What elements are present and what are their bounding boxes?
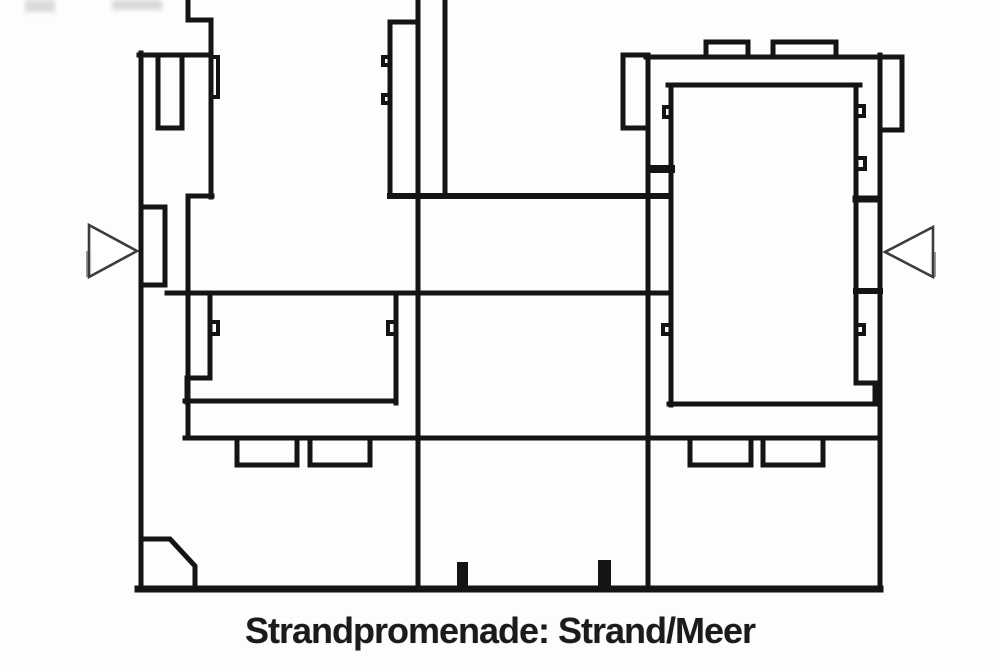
scan-artifact-1 [25,0,55,12]
entrance-arrow-left [89,225,137,277]
chamfer-corner [145,539,195,588]
door-marks-group [457,560,611,588]
door-tick-1 [457,562,468,588]
floor-plan-drawing [0,0,1000,666]
pilaster-right [880,57,902,130]
floor-plan-page: Strandpromenade: Strand/Meer [0,0,1000,666]
balcony-outline-4 [763,438,823,465]
courtyard-right-east-wall [856,85,875,403]
pilaster-left [623,55,647,128]
door-tick-2 [598,560,611,587]
shaft-box-left [158,55,182,128]
plan-caption: Strandpromenade: Strand/Meer [0,610,1000,652]
balcony-outline-1 [237,438,297,465]
balcony-outline-3 [690,438,751,465]
entrance-tab-left [141,207,165,285]
scan-artifact-2 [112,0,162,10]
walls-group [138,0,902,590]
entrance-arrow-right-group [885,227,933,277]
entrance-arrow-right [885,227,933,277]
wall-west-outline [188,0,211,197]
balcony-outline-2 [310,438,370,465]
entrance-arrow-left-group [89,225,137,277]
scan-artifacts [25,0,162,12]
entrance-arrows-group [89,225,933,277]
